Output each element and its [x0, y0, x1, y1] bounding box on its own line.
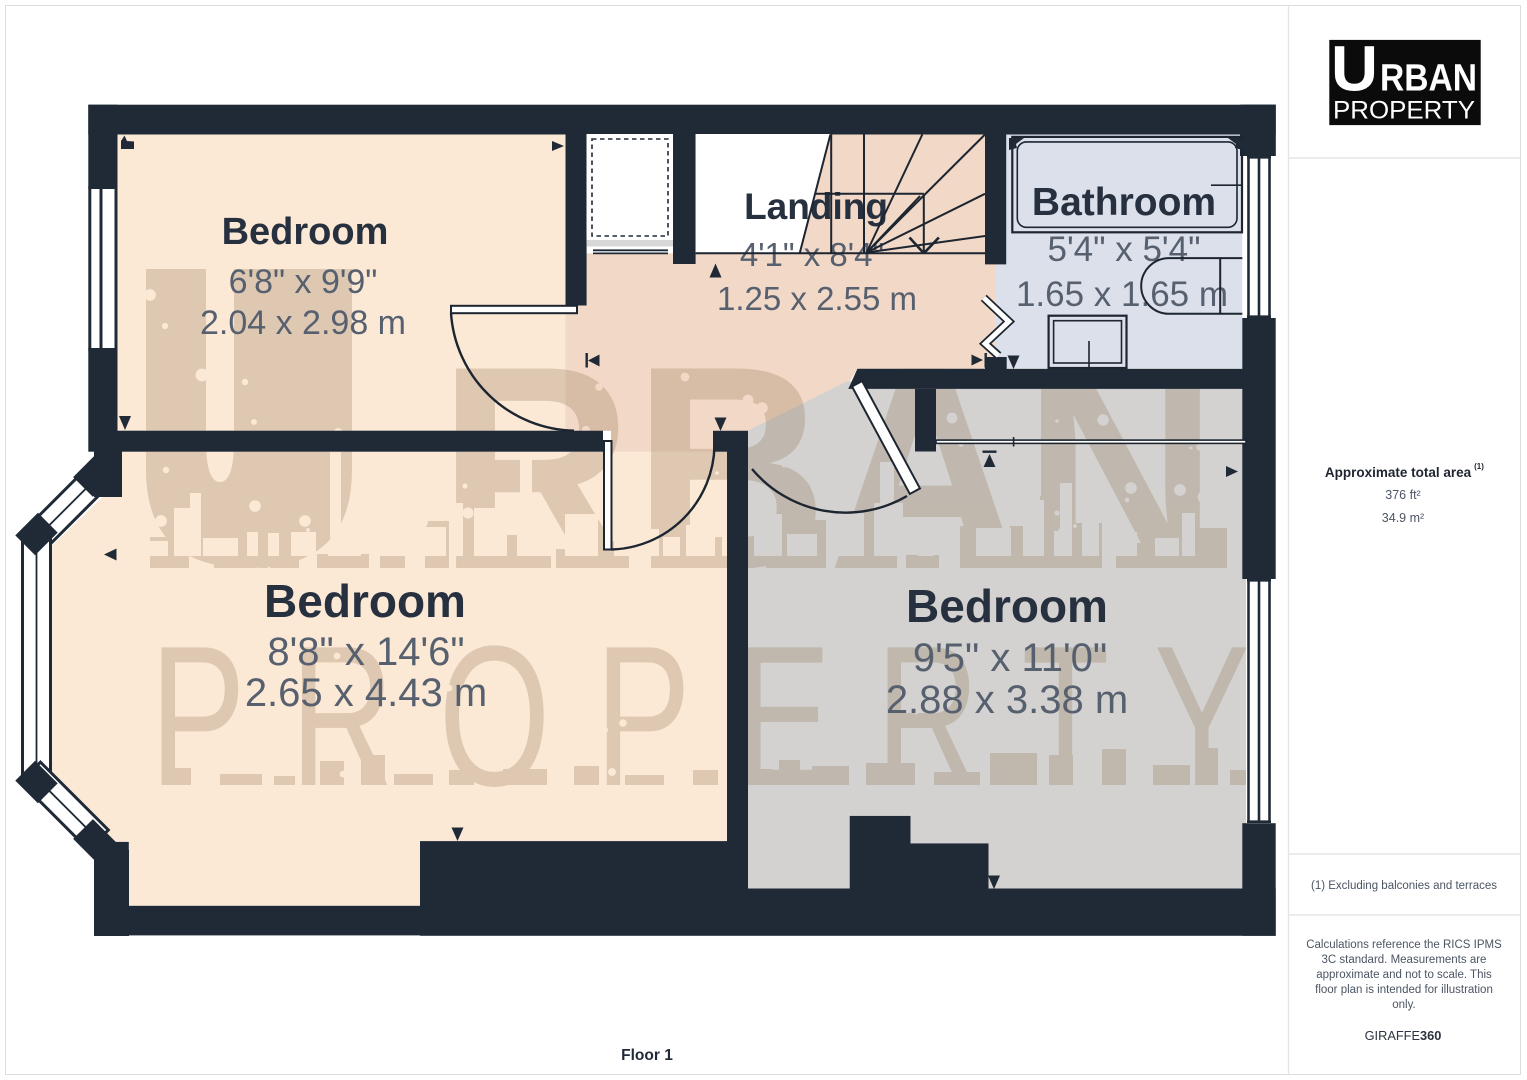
svg-text:2.04 x 2.98 m: 2.04 x 2.98 m [200, 304, 406, 342]
svg-text:8'8" x 14'6": 8'8" x 14'6" [267, 630, 464, 674]
svg-text:1.25 x 2.55 m: 1.25 x 2.55 m [717, 280, 917, 317]
svg-text:U: U [1331, 33, 1378, 105]
svg-text:3C standard. Measurements are: 3C standard. Measurements are [1322, 954, 1487, 966]
svg-text:(1) Excluding balconies and te: (1) Excluding balconies and terraces [1311, 880, 1497, 892]
svg-text:9'5" x 11'0": 9'5" x 11'0" [913, 636, 1107, 680]
svg-text:Bedroom: Bedroom [906, 580, 1108, 632]
svg-text:4'1" x 8'4": 4'1" x 8'4" [740, 236, 884, 273]
svg-text:GIRAFFE360: GIRAFFE360 [1365, 1028, 1442, 1043]
svg-text:Bathroom: Bathroom [1032, 181, 1216, 224]
svg-text:floor plan is intended for ill: floor plan is intended for illustration [1315, 984, 1493, 996]
svg-text:2.65 x 4.43 m: 2.65 x 4.43 m [245, 671, 487, 715]
svg-text:Floor 1: Floor 1 [621, 1047, 673, 1064]
svg-text:34.9 m²: 34.9 m² [1382, 511, 1424, 525]
svg-text:(1): (1) [1474, 462, 1484, 471]
svg-text:approximate and not to scale.: approximate and not to scale. This [1316, 969, 1492, 981]
svg-text:Approximate total area: Approximate total area [1325, 465, 1472, 480]
svg-text:5'4" x 5'4": 5'4" x 5'4" [1047, 230, 1200, 269]
svg-text:2.88 x 3.38 m: 2.88 x 3.38 m [886, 678, 1128, 722]
svg-text:Calculations reference the RIC: Calculations reference the RICS IPMS [1306, 939, 1502, 951]
svg-text:PROPERTY: PROPERTY [1333, 97, 1475, 125]
svg-text:376 ft²: 376 ft² [1385, 488, 1420, 502]
svg-text:1.65 x 1.65 m: 1.65 x 1.65 m [1016, 275, 1228, 314]
svg-text:Bedroom: Bedroom [264, 575, 466, 627]
svg-text:Bedroom: Bedroom [222, 211, 389, 253]
svg-text:RBAN: RBAN [1380, 58, 1477, 100]
svg-text:6'8" x 9'9": 6'8" x 9'9" [229, 263, 378, 301]
svg-text:only.: only. [1392, 999, 1415, 1011]
